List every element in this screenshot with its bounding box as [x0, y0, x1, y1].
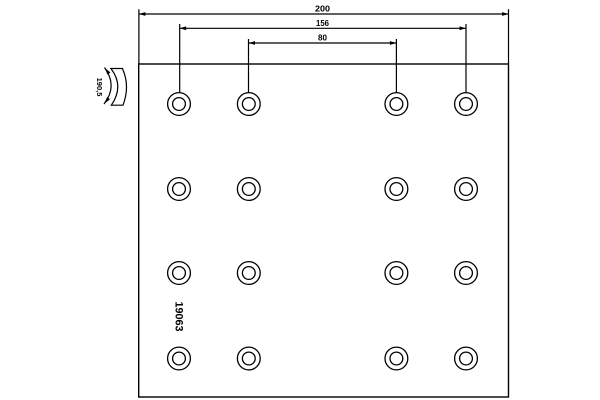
- svg-text:190,5: 190,5: [95, 78, 104, 97]
- svg-text:19063: 19063: [172, 301, 184, 331]
- svg-text:200: 200: [315, 4, 330, 14]
- svg-text:156: 156: [316, 18, 329, 28]
- svg-text:80: 80: [318, 33, 327, 43]
